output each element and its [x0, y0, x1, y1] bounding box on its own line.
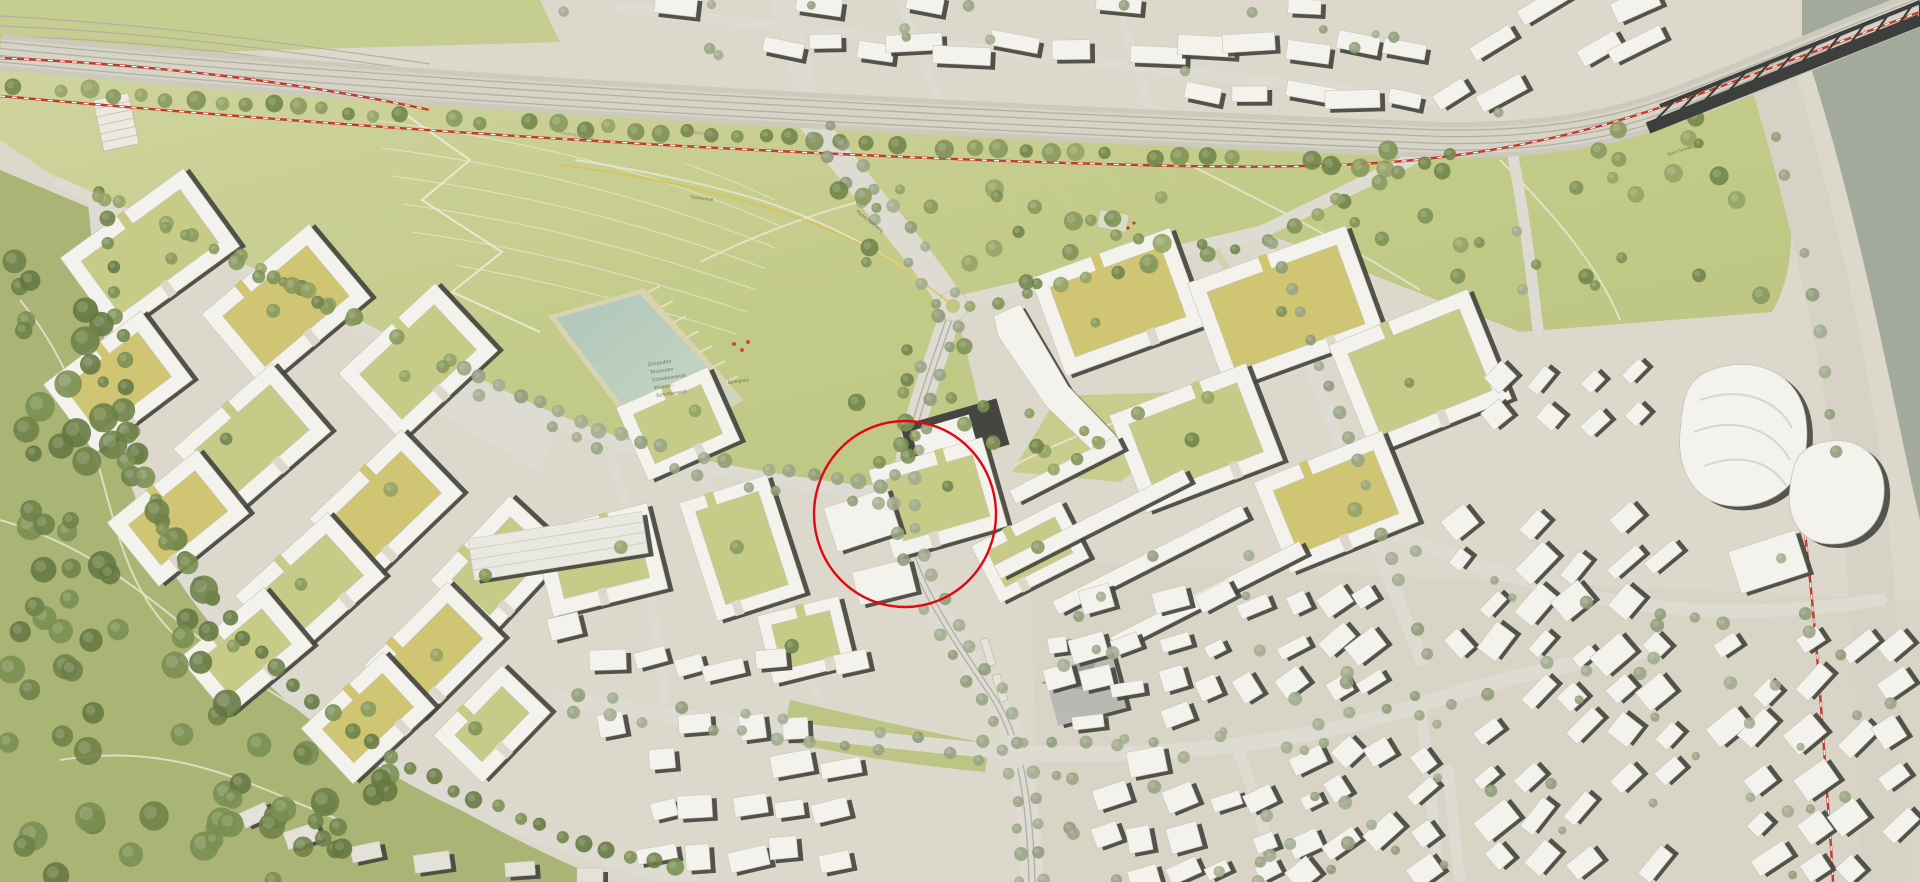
masterplan-map: Sitzstufen Terrassen Schwimmteich Wasser…: [0, 0, 1920, 882]
masterplan-canvas: Sitzstufen Terrassen Schwimmteich Wasser…: [0, 0, 1920, 882]
